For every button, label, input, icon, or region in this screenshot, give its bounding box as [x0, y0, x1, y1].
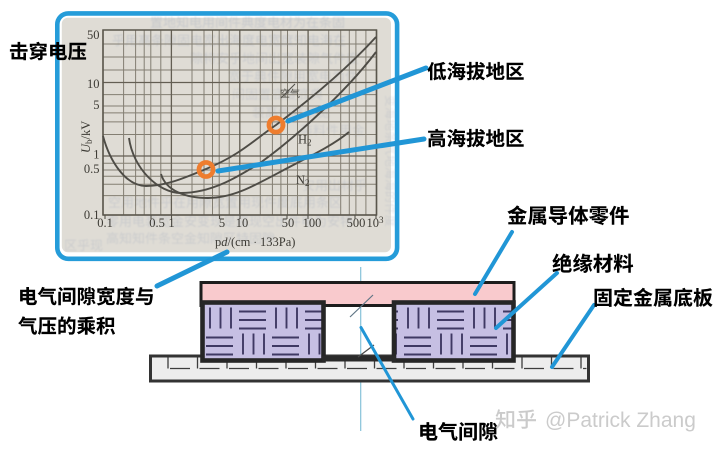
svg-text:10: 10: [236, 216, 249, 230]
svg-text:Ub/kV: Ub/kV: [79, 121, 94, 153]
svg-text:500: 500: [347, 216, 366, 230]
svg-text:@Patrick Zhang: @Patrick Zhang: [545, 409, 696, 432]
svg-text:50: 50: [282, 216, 295, 230]
svg-text:50: 50: [87, 28, 100, 42]
svg-text:5: 5: [93, 98, 99, 112]
svg-text:0.5: 0.5: [84, 162, 100, 176]
svg-text:10: 10: [87, 77, 100, 91]
svg-text:1: 1: [93, 148, 99, 162]
svg-text:100: 100: [303, 216, 322, 230]
svg-text:pd/(cm · 133Pa): pd/(cm · 133Pa): [215, 235, 295, 249]
